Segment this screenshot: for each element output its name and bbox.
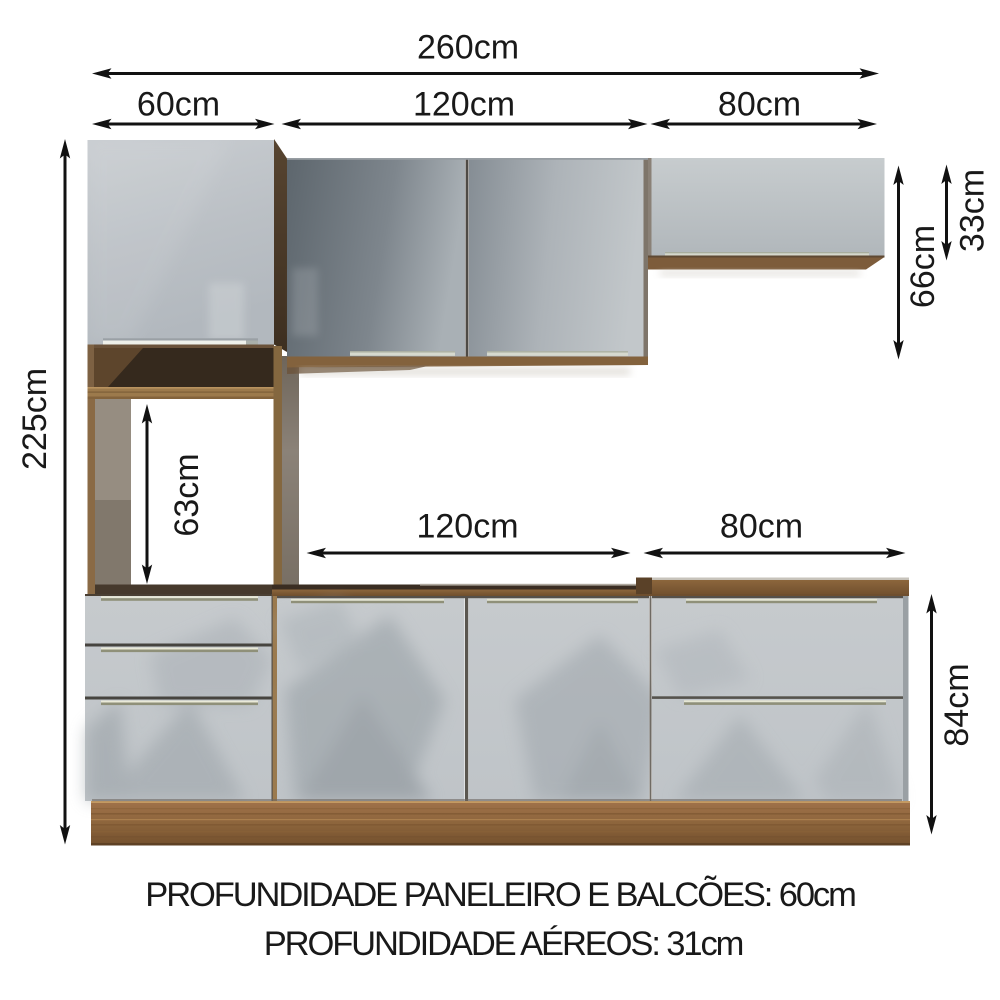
svg-text:120cm: 120cm: [416, 508, 518, 546]
svg-text:260cm: 260cm: [417, 29, 519, 67]
svg-text:33cm: 33cm: [954, 169, 992, 252]
svg-text:120cm: 120cm: [413, 86, 515, 124]
svg-text:84cm: 84cm: [938, 663, 976, 746]
svg-text:PROFUNDIDADE PANELEIRO E BALCÕ: PROFUNDIDADE PANELEIRO E BALCÕES: 60cm: [145, 874, 855, 914]
svg-text:80cm: 80cm: [718, 86, 801, 124]
svg-text:63cm: 63cm: [168, 453, 206, 536]
svg-text:PROFUNDIDADE AÉREOS: 31cm: PROFUNDIDADE AÉREOS: 31cm: [264, 924, 743, 963]
svg-text:66cm: 66cm: [904, 225, 942, 308]
svg-text:80cm: 80cm: [720, 508, 803, 546]
svg-text:225cm: 225cm: [16, 368, 54, 470]
svg-text:60cm: 60cm: [137, 86, 220, 124]
